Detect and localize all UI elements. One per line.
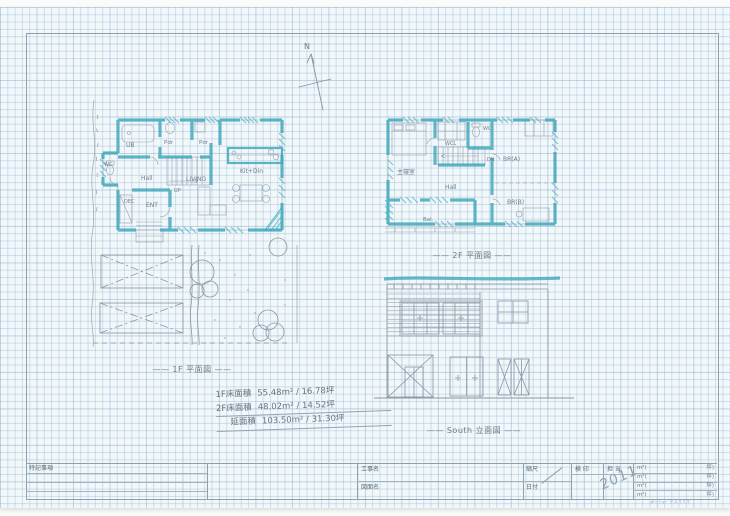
- room-label-kitdin: Kit+Din: [240, 168, 263, 175]
- walls-1f: [103, 120, 282, 230]
- area-unit-row: m²(坪): [634, 473, 717, 481]
- room-label-up: UP: [174, 188, 181, 194]
- room-label-living: LIVING: [186, 176, 206, 183]
- room-label-wcl: WCL: [445, 141, 456, 147]
- roof-line: [384, 278, 560, 279]
- window-band-2f: [400, 301, 482, 336]
- floor-plan-1f: UB Pdr Pdr WC Hall UP DEC ENT LIVING Kit…: [80, 95, 330, 395]
- bed: [392, 123, 426, 155]
- kitchen-sink: [268, 149, 274, 155]
- area-unit-row: m²(坪): [634, 491, 717, 499]
- room-label-hall: Hall: [141, 175, 153, 182]
- title-block: 特記事項 工事名 図面名 縮尺 日付 検 印 担 当 2011 m²(坪) m²…: [26, 463, 717, 499]
- caption-plan2f: —— 2F 平面図 ——: [432, 251, 511, 260]
- dining-table: [240, 185, 262, 201]
- room-label-dec: DEC: [124, 199, 135, 205]
- room-label-dn: DN: [487, 157, 495, 163]
- area-label-2f: 2F床面積: [216, 402, 252, 413]
- unit-m2: m²(: [637, 464, 647, 472]
- room-label-master: 主寝室: [397, 168, 415, 176]
- room-label-ub: UB: [126, 142, 135, 149]
- area-unit-row: m²(坪): [634, 464, 717, 472]
- area-value-1f: 55.48m² / 16.78坪: [257, 386, 334, 399]
- tree: [269, 238, 287, 256]
- area-label-1f: 1F床面積: [215, 389, 251, 400]
- room-label-pdr2: Pdr: [199, 140, 209, 146]
- area-unit-row: m²(坪): [634, 482, 717, 490]
- caption-plan1f: —— 1F 平面図 ——: [152, 365, 231, 374]
- scale-label: 縮尺: [526, 466, 538, 473]
- balcony-railing: [385, 228, 475, 232]
- room-label-wc2: WC: [483, 126, 492, 132]
- unit-tsubo: 坪): [706, 473, 714, 481]
- area-label-total: 延面積: [230, 417, 256, 428]
- south-elevation: —— South 立面図 ——: [372, 272, 578, 444]
- sofa: [198, 187, 210, 215]
- stamp-label: 検 印: [575, 466, 589, 473]
- unit-m2: m²(: [637, 473, 647, 481]
- project-name-label: 工事名: [361, 466, 379, 473]
- unit-tsubo: 坪): [706, 464, 714, 472]
- unit-tsubo: 坪): [706, 482, 714, 490]
- unit-m2: m²(: [637, 491, 647, 499]
- notes-label: 特記事項: [29, 465, 53, 472]
- room-label-ent: ENT: [146, 202, 158, 209]
- room-label-bra: BR(A): [503, 156, 520, 163]
- date-label: 日付: [526, 484, 538, 491]
- unit-tsubo: 坪): [706, 491, 714, 499]
- unit-m2: m²(: [637, 482, 647, 490]
- paper-brand-text: #star EA333: [650, 500, 690, 506]
- room-label-bal: Bal.: [423, 217, 434, 223]
- site-boundary-left: [91, 100, 98, 347]
- gravel-dots: [204, 252, 285, 338]
- room-label-pdr1: Pdr: [164, 140, 174, 146]
- caption-elevation: —— South 立面図 ——: [427, 425, 521, 435]
- parapet: [387, 284, 548, 289]
- area-value-2f: 48.02m² / 14.52坪: [258, 399, 335, 412]
- room-label-wc: WC: [104, 162, 113, 168]
- tree: [190, 260, 214, 284]
- floor-plan-2f: 主寝室 WCL WC DN Hall BR(A) BR(B) Bal. —— 2…: [375, 100, 575, 270]
- room-label-brb: BR(B): [507, 199, 524, 206]
- area-value-total: 103.50m² / 31.30坪: [262, 414, 345, 427]
- area-notes: 1F床面積55.48m² / 16.78坪 2F床面積48.02m² / 14.…: [215, 383, 391, 432]
- toilet-2f: [473, 127, 480, 137]
- north-label: N: [304, 42, 310, 51]
- sink-1f: [166, 123, 175, 134]
- drawing-name-label: 図面名: [361, 484, 379, 491]
- room-label-hall2: Hall: [445, 184, 457, 191]
- drawing-sheet: N: [0, 0, 730, 516]
